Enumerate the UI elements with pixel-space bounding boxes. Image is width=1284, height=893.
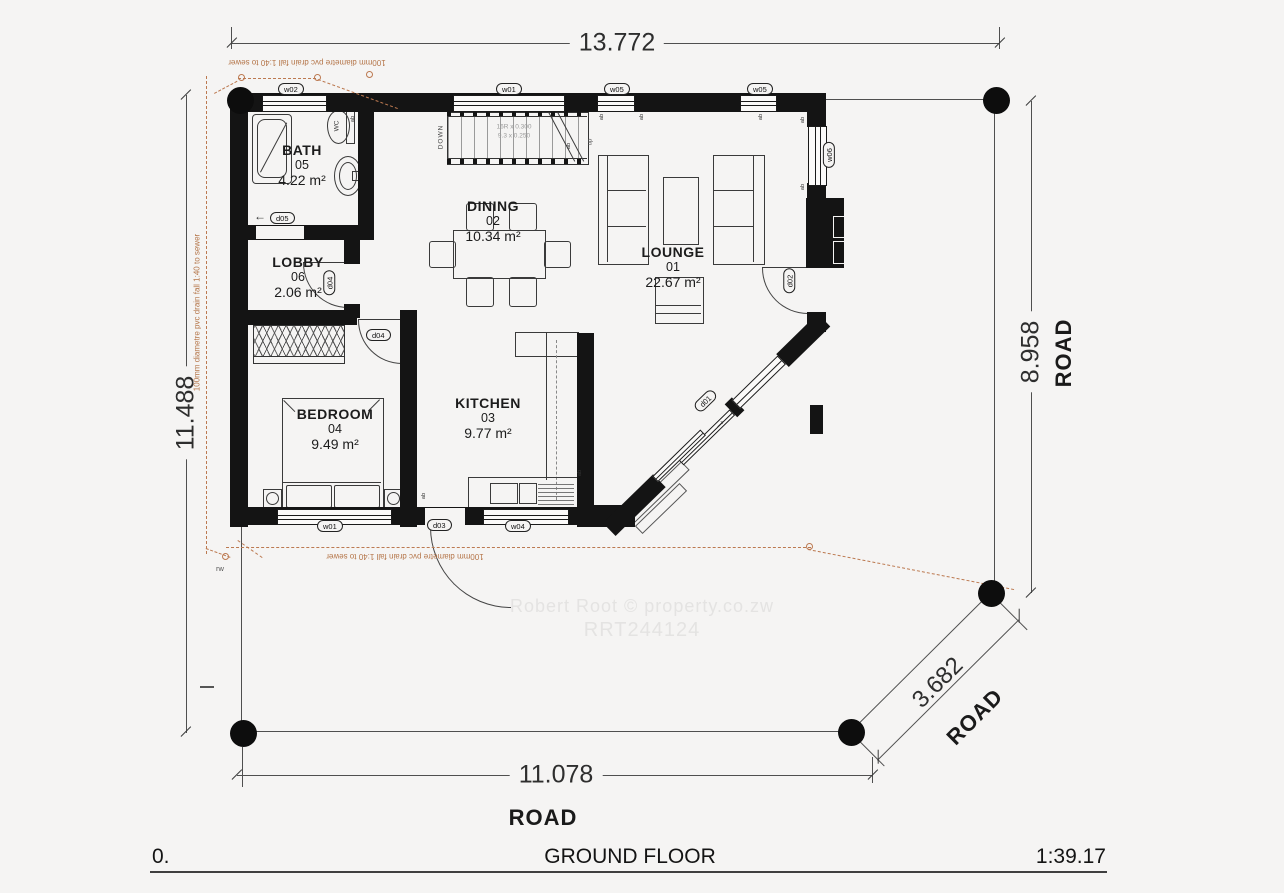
fireplace-notch (833, 241, 845, 264)
ab-marker: ab (577, 470, 583, 476)
dim-ext (242, 747, 243, 787)
wardrobe-rail (253, 355, 345, 364)
road-label-right: ROAD (1051, 319, 1077, 388)
kitchen-overhead-units (556, 340, 557, 500)
lamp (387, 492, 400, 505)
tag-d03: d03 (427, 519, 452, 531)
tag-d02: d02 (783, 269, 795, 294)
watermark-line1: Robert Root © property.co.zw (0, 596, 1284, 617)
room-name: LOBBY (272, 255, 324, 270)
dining-chair (544, 241, 571, 268)
sofa-right (713, 155, 765, 265)
stair-rail-bottom (447, 158, 587, 164)
floor-plan-canvas: { "title_block": { "sheet_no": "0.", "ti… (0, 0, 1284, 893)
stair-note-1: 16R x 0.300 (496, 124, 531, 131)
dim-ext (231, 27, 232, 49)
survey-peg-bottom-left (230, 720, 257, 747)
window-w05-a (597, 95, 635, 112)
drain-note-top: 100mm diametre pvc drain fall 1:40 to se… (207, 58, 407, 67)
drain-junction (806, 543, 813, 550)
sliding-door-panel-1 (678, 409, 735, 465)
room-area: 10.34 m² (465, 229, 520, 244)
sofa-back (753, 156, 754, 262)
drain-line (238, 78, 316, 79)
drain-line-left (206, 76, 207, 554)
left-margin-mark (200, 686, 214, 688)
tag-w04: w04 (505, 520, 531, 532)
dim-tick (877, 750, 878, 764)
fireplace-notch (833, 216, 845, 238)
stair-up-label: up (587, 139, 593, 146)
armchair-line (656, 305, 701, 306)
wc-label: WC (334, 121, 341, 132)
sofa-cushion-line (714, 190, 753, 191)
room-label-dining: DINING 02 10.34 m² (465, 199, 520, 244)
window-w02 (262, 95, 327, 112)
window-w05-b (740, 95, 777, 112)
dim-tick (1018, 609, 1019, 623)
ab-marker: ab (599, 114, 605, 120)
coffee-table (663, 177, 699, 245)
title-rule (150, 871, 1107, 873)
tag-w01-top: w01 (496, 83, 522, 95)
room-area: 22.67 m² (642, 275, 705, 290)
drain-line-bottom (226, 547, 811, 548)
bed-sheet-line (283, 482, 381, 483)
drain-junction (366, 71, 373, 78)
wall-lobby-right-upper (344, 240, 360, 264)
tag-d04-bedroom: d04 (366, 329, 391, 341)
watermark-line2: RRT244124 (0, 619, 1284, 642)
wall-bedroom-right (400, 310, 417, 527)
sofa-cushion-line (714, 226, 753, 227)
survey-peg-right (978, 580, 1005, 607)
room-number: 05 (278, 158, 325, 173)
room-name: LOUNGE (642, 245, 705, 260)
room-label-kitchen: KITCHEN 03 9.77 m² (455, 396, 521, 441)
survey-peg-top-right (983, 87, 1010, 114)
sink-bowl (490, 483, 518, 504)
door-opening-d05 (256, 226, 304, 239)
dining-chair (466, 277, 494, 307)
ab-marker: ab (421, 493, 427, 499)
dining-chair (429, 241, 456, 268)
room-name: DINING (465, 199, 520, 214)
door-leaf-d04-bedroom (358, 319, 401, 320)
stair-down-label: DOWN (438, 125, 445, 150)
wall-bath-right (358, 93, 374, 240)
lamp (266, 492, 279, 505)
dim-top: 13.772 (570, 29, 664, 58)
road-label-diagonal: ROAD (941, 683, 1008, 750)
sofa-cushion-line (607, 190, 646, 191)
drain-note-bottom: 100mm diametre pvc drain fall 1:40 to se… (285, 552, 525, 561)
kitchen-counter-top (515, 332, 579, 357)
wardrobe (253, 325, 345, 357)
rainwater-outlet (222, 553, 229, 560)
survey-peg-top-left (227, 87, 254, 114)
sink-bowl-small (519, 483, 537, 504)
dim-ext (999, 27, 1000, 49)
tag-d01: d01 (692, 388, 718, 414)
stair-note-2: 9.3 x 0.250 (498, 133, 530, 140)
ab-marker: ab (800, 117, 806, 123)
room-area: 9.77 m² (455, 426, 521, 441)
window-w01-top (453, 95, 565, 112)
tag-w01-bottom: w01 (317, 520, 343, 532)
tag-w05-a: w05 (604, 83, 630, 95)
boundary-line-right (994, 100, 995, 593)
drain-note-left: 100mm diametre pvc drain fall 1:40 to se… (193, 163, 202, 463)
kitchen-counter-edge (546, 355, 547, 480)
room-label-bedroom: BEDROOM 04 9.49 m² (297, 407, 374, 452)
room-number: 02 (465, 214, 520, 229)
column (810, 405, 823, 434)
tag-w06: w06 (823, 142, 835, 168)
room-number: 01 (642, 260, 705, 275)
diagonal-window (732, 355, 786, 408)
room-name: BEDROOM (297, 407, 374, 422)
tag-w02: w02 (278, 83, 304, 95)
room-number: 03 (455, 411, 521, 426)
room-number: 06 (272, 270, 324, 285)
room-area: 2.06 m² (272, 285, 324, 300)
pillow (286, 485, 332, 508)
tag-w05-b: w05 (747, 83, 773, 95)
diagonal-wall-segment (776, 314, 830, 367)
ab-marker: ab (639, 114, 645, 120)
room-label-lobby: LOBBY 06 2.06 m² (272, 255, 324, 300)
dim-bottom: 11.078 (510, 761, 603, 790)
door-arc-d04-bedroom (358, 320, 402, 364)
door-leaf-d02 (762, 267, 807, 268)
armchair-line (656, 313, 701, 314)
drain-junction (238, 74, 245, 81)
drawing-scale: 1:39.17 (1036, 845, 1106, 869)
boundary-line-bottom (243, 731, 851, 732)
kitchen-counter-divider (546, 332, 547, 355)
drain-junction (314, 74, 321, 81)
rw-label: rw (216, 564, 224, 573)
dining-chair (509, 277, 537, 307)
room-area: 9.49 m² (297, 437, 374, 452)
ab-marker: ab (566, 143, 572, 149)
wall-right-upper (807, 93, 826, 127)
road-label-bottom: ROAD (509, 805, 578, 831)
survey-peg-bottom-right (838, 719, 865, 746)
room-number: 04 (297, 422, 374, 437)
room-name: KITCHEN (455, 396, 521, 411)
ab-marker: ab (800, 184, 806, 190)
ab-marker: ab (758, 114, 764, 120)
wall-bedroom-top (230, 310, 357, 325)
sofa-cushion-line (607, 226, 646, 227)
room-area: 4.22 m² (278, 173, 325, 188)
ab-marker: ab (350, 116, 356, 122)
sofa-back (607, 156, 608, 262)
pillow (334, 485, 380, 508)
tag-d05: d05 (270, 212, 295, 224)
dim-right: 8.958 (1017, 312, 1046, 393)
room-label-lounge: LOUNGE 01 22.67 m² (642, 245, 705, 290)
door-arrow-d05: ← (254, 209, 266, 223)
room-name: BATH (278, 143, 325, 158)
tag-d04-lobby: d04 (323, 271, 335, 296)
dim-ext (872, 757, 873, 783)
room-label-bath: BATH 05 4.22 m² (278, 143, 325, 188)
wall-kitchen-right (577, 333, 594, 527)
draining-board (538, 481, 574, 505)
